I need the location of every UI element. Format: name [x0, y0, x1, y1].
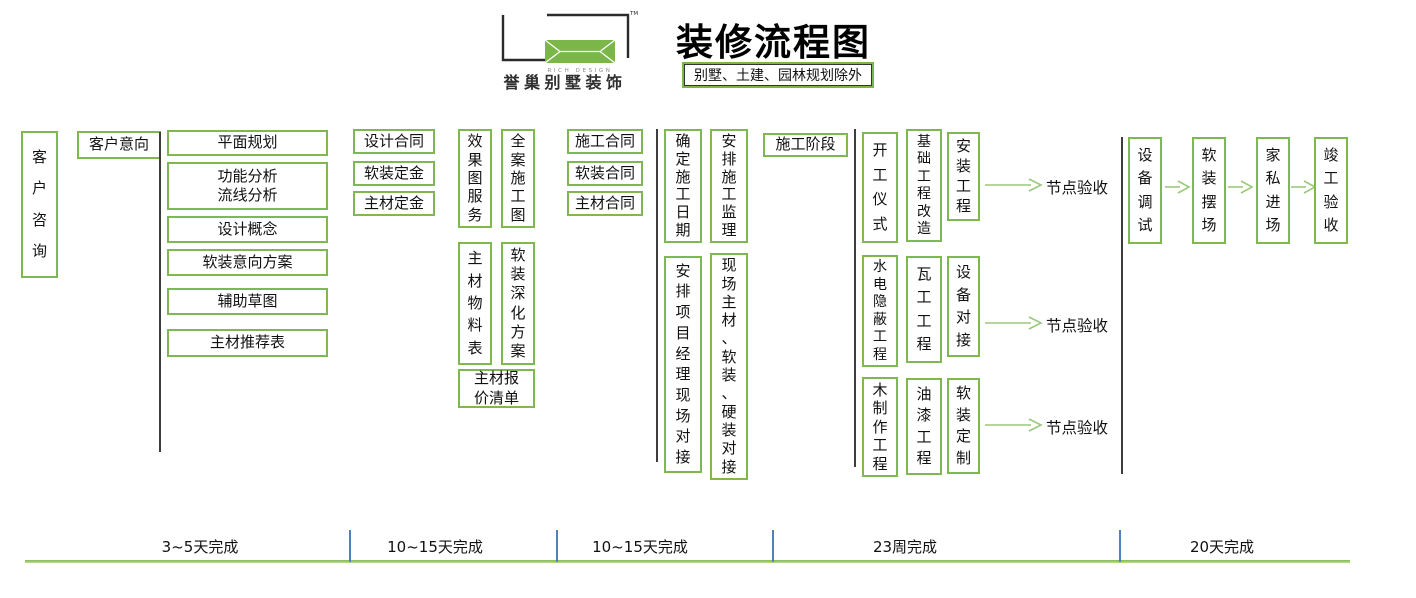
- box-soft-deco-deepen-plan-label: 软装深化方案: [503, 244, 533, 363]
- box-design-concept: 设计概念: [167, 216, 328, 243]
- box-tiling-works: 瓦工工程: [906, 256, 942, 363]
- company-logo: TM RICH DESIGN 誉巢别墅装饰: [488, 6, 638, 92]
- label-node-acceptance-1: 节点验收: [1046, 176, 1108, 198]
- page-subtitle: 别墅、土建、园林规划除外: [684, 64, 872, 86]
- box-carpentry-works-label: 木制作工程: [864, 379, 896, 475]
- box-onsite-material-docking: 现场主材、软装、硬装对接: [710, 253, 748, 480]
- box-construction-phase: 施工阶段: [763, 133, 848, 157]
- box-customer-consultation: 客户咨询: [21, 131, 58, 278]
- arrow-right-icon: [985, 316, 1043, 330]
- box-soft-deco-staging-label: 软装摆场: [1194, 139, 1224, 242]
- box-project-manager-onsite-label: 安排项目经理现场对接: [666, 258, 700, 471]
- box-set-construction-date: 确定施工日期: [664, 129, 702, 243]
- box-plumbing-electrical-hidden: 水电隐蔽工程: [862, 255, 898, 367]
- box-auxiliary-sketch: 辅助草图: [167, 288, 328, 315]
- box-function-flow-analysis: 功能分析 流线分析: [167, 162, 328, 210]
- box-main-material-list: 主材物料表: [458, 242, 492, 365]
- box-full-construction-drawing-label: 全案施工图: [503, 131, 533, 226]
- label-node-acceptance-3: 节点验收: [1046, 416, 1108, 438]
- box-completion-acceptance: 竣工验收: [1314, 137, 1348, 244]
- box-design-contract: 设计合同: [353, 129, 435, 154]
- logo-bed-icon: [545, 40, 615, 63]
- box-soft-deco-deposit: 软装定金: [353, 161, 435, 186]
- box-main-material-quotation: 主材报 价清单: [458, 369, 535, 408]
- arrow-right-icon: [985, 418, 1043, 432]
- label-node-acceptance-2: 节点验收: [1046, 314, 1108, 336]
- box-foundation-renovation-label: 基础工程改造: [908, 131, 940, 240]
- timeline-tick-4: [1119, 530, 1121, 562]
- timeline-label-2: 10~15天完成: [375, 536, 495, 556]
- box-furniture-entry-label: 家私进场: [1258, 139, 1288, 242]
- box-set-construction-date-label: 确定施工日期: [666, 131, 700, 241]
- box-painting-works: 油漆工程: [906, 378, 942, 475]
- arrow-right-icon: [985, 178, 1043, 192]
- box-carpentry-works: 木制作工程: [862, 377, 898, 477]
- timeline-tick-1: [349, 530, 351, 562]
- box-groundbreaking-ceremony: 开工仪式: [862, 132, 898, 243]
- divider-line-2: [656, 129, 658, 462]
- box-equipment-debugging: 设备调试: [1128, 137, 1162, 244]
- box-rendering-service: 效果图服务: [458, 129, 492, 228]
- box-installation-works-label: 安装工程: [949, 134, 978, 219]
- box-plumbing-electrical-hidden-label: 水电隐蔽工程: [864, 257, 896, 365]
- divider-line-1: [159, 132, 161, 452]
- timeline-tick-3: [772, 530, 774, 562]
- decoration-process-diagram: TM RICH DESIGN 誉巢别墅装饰 装修流程图 别墅、土建、园林规划除外…: [0, 0, 1416, 598]
- box-completion-acceptance-label: 竣工验收: [1316, 139, 1346, 242]
- page-title: 装修流程图: [676, 12, 876, 60]
- box-equipment-docking-label: 设备对接: [949, 258, 978, 355]
- box-main-material-recommend: 主材推荐表: [167, 329, 328, 357]
- box-project-manager-onsite: 安排项目经理现场对接: [664, 256, 702, 473]
- timeline-axis: [25, 560, 1350, 563]
- box-groundbreaking-ceremony-label: 开工仪式: [864, 134, 896, 241]
- timeline-label-5: 20天完成: [1162, 536, 1282, 556]
- box-rendering-service-label: 效果图服务: [460, 131, 490, 226]
- box-equipment-debugging-label: 设备调试: [1130, 139, 1160, 242]
- box-soft-deco-customization: 软装定制: [947, 378, 980, 474]
- box-arrange-supervision: 安排施工监理: [710, 129, 748, 243]
- box-equipment-docking: 设备对接: [947, 256, 980, 357]
- box-customer-consultation-label: 客户咨询: [23, 133, 56, 276]
- box-customer-intention: 客户意向: [77, 131, 161, 159]
- timeline-label-4: 23周完成: [850, 536, 960, 556]
- box-onsite-material-docking-label: 现场主材、软装、硬装对接: [712, 255, 746, 478]
- box-floor-planning: 平面规划: [167, 130, 328, 156]
- box-full-construction-drawing: 全案施工图: [501, 129, 535, 228]
- divider-line-3: [854, 129, 856, 467]
- timeline-tick-2: [556, 530, 558, 562]
- box-foundation-renovation: 基础工程改造: [906, 129, 942, 242]
- box-soft-deco-contract: 软装合同: [567, 161, 643, 186]
- box-soft-deco-customization-label: 软装定制: [949, 380, 978, 472]
- box-main-material-deposit: 主材定金: [353, 191, 435, 216]
- box-furniture-entry: 家私进场: [1256, 137, 1290, 244]
- box-arrange-supervision-label: 安排施工监理: [712, 131, 746, 241]
- box-painting-works-label: 油漆工程: [908, 380, 940, 473]
- box-soft-deco-staging: 软装摆场: [1192, 137, 1226, 244]
- arrow-right-icon: [1165, 180, 1191, 194]
- box-main-material-contract: 主材合同: [567, 191, 643, 216]
- box-soft-deco-deepen-plan: 软装深化方案: [501, 242, 535, 365]
- timeline-label-1: 3~5天完成: [140, 536, 260, 556]
- box-construction-contract: 施工合同: [567, 129, 643, 154]
- box-installation-works: 安装工程: [947, 132, 980, 221]
- divider-line-4: [1121, 137, 1123, 474]
- logo-brand-cn: 誉巢别墅装饰: [502, 73, 626, 92]
- logo-tm: TM: [629, 11, 638, 17]
- box-tiling-works-label: 瓦工工程: [908, 258, 940, 361]
- box-main-material-list-label: 主材物料表: [460, 244, 490, 363]
- box-soft-deco-intent-plan: 软装意向方案: [167, 249, 328, 276]
- arrow-right-icon: [1228, 180, 1254, 194]
- timeline-label-3: 10~15天完成: [580, 536, 700, 556]
